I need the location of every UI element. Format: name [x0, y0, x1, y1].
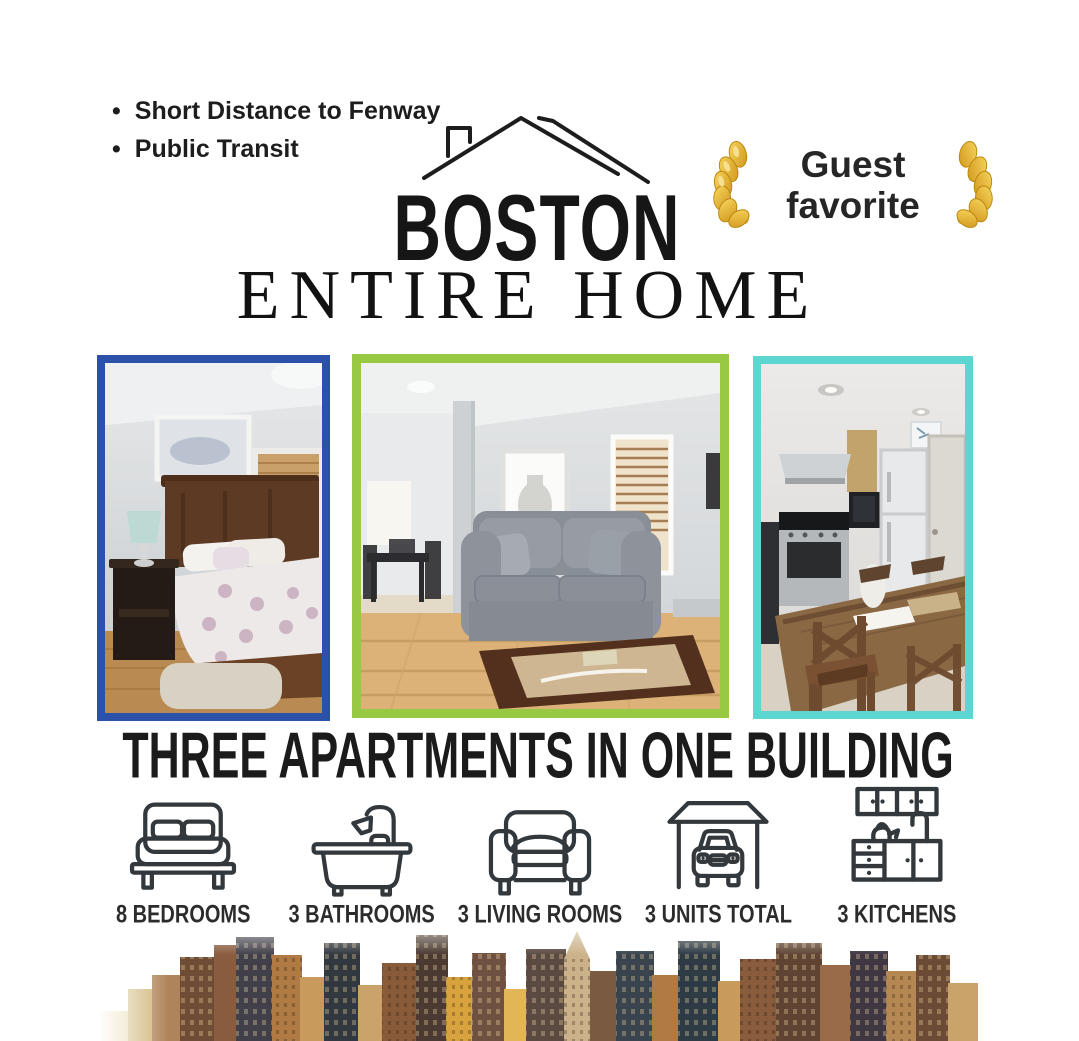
badge-text: Guest favorite: [786, 145, 920, 226]
laurel-left-icon: [697, 138, 751, 234]
bathtub-icon: [308, 797, 416, 899]
feature-item: Short Distance to Fenway: [112, 96, 440, 126]
boston-title: BOSTON: [372, 186, 702, 245]
laurel-right-icon: [955, 138, 1009, 234]
headline: THREE APARTMENTS IN ONE BUILDING: [0, 728, 1076, 767]
kitchen-photo: [753, 356, 973, 719]
guest-favorite-badge: Guest favorite: [697, 138, 1009, 234]
stat-bedrooms: 8 BEDROOMS: [94, 780, 272, 930]
bed-icon: [126, 799, 240, 899]
stat-kitchens: 3 KITCHENS: [808, 780, 986, 930]
stats-row: 8 BEDROOMS 3 BATHROOMS: [94, 780, 986, 930]
features-list: Short Distance to Fenway Public Transit: [112, 96, 440, 172]
living-room-photo: [352, 354, 729, 718]
kitchen-cabinets-icon: [844, 785, 950, 899]
stat-bathrooms: 3 BATHROOMS: [272, 780, 450, 930]
sofa-icon: [483, 799, 597, 899]
bedroom-photo: [97, 355, 330, 721]
stat-living-rooms: 3 LIVING ROOMS: [451, 780, 629, 930]
listing-cover: Short Distance to Fenway Public Transit …: [0, 0, 1079, 1041]
stat-units: 3 UNITS TOTAL: [629, 780, 807, 930]
subtitle-entire-home: ENTIRE HOME: [0, 256, 1056, 336]
boston-skyline-photo: [98, 929, 980, 1041]
car-garage-icon: [662, 795, 774, 899]
feature-item: Public Transit: [112, 134, 440, 164]
